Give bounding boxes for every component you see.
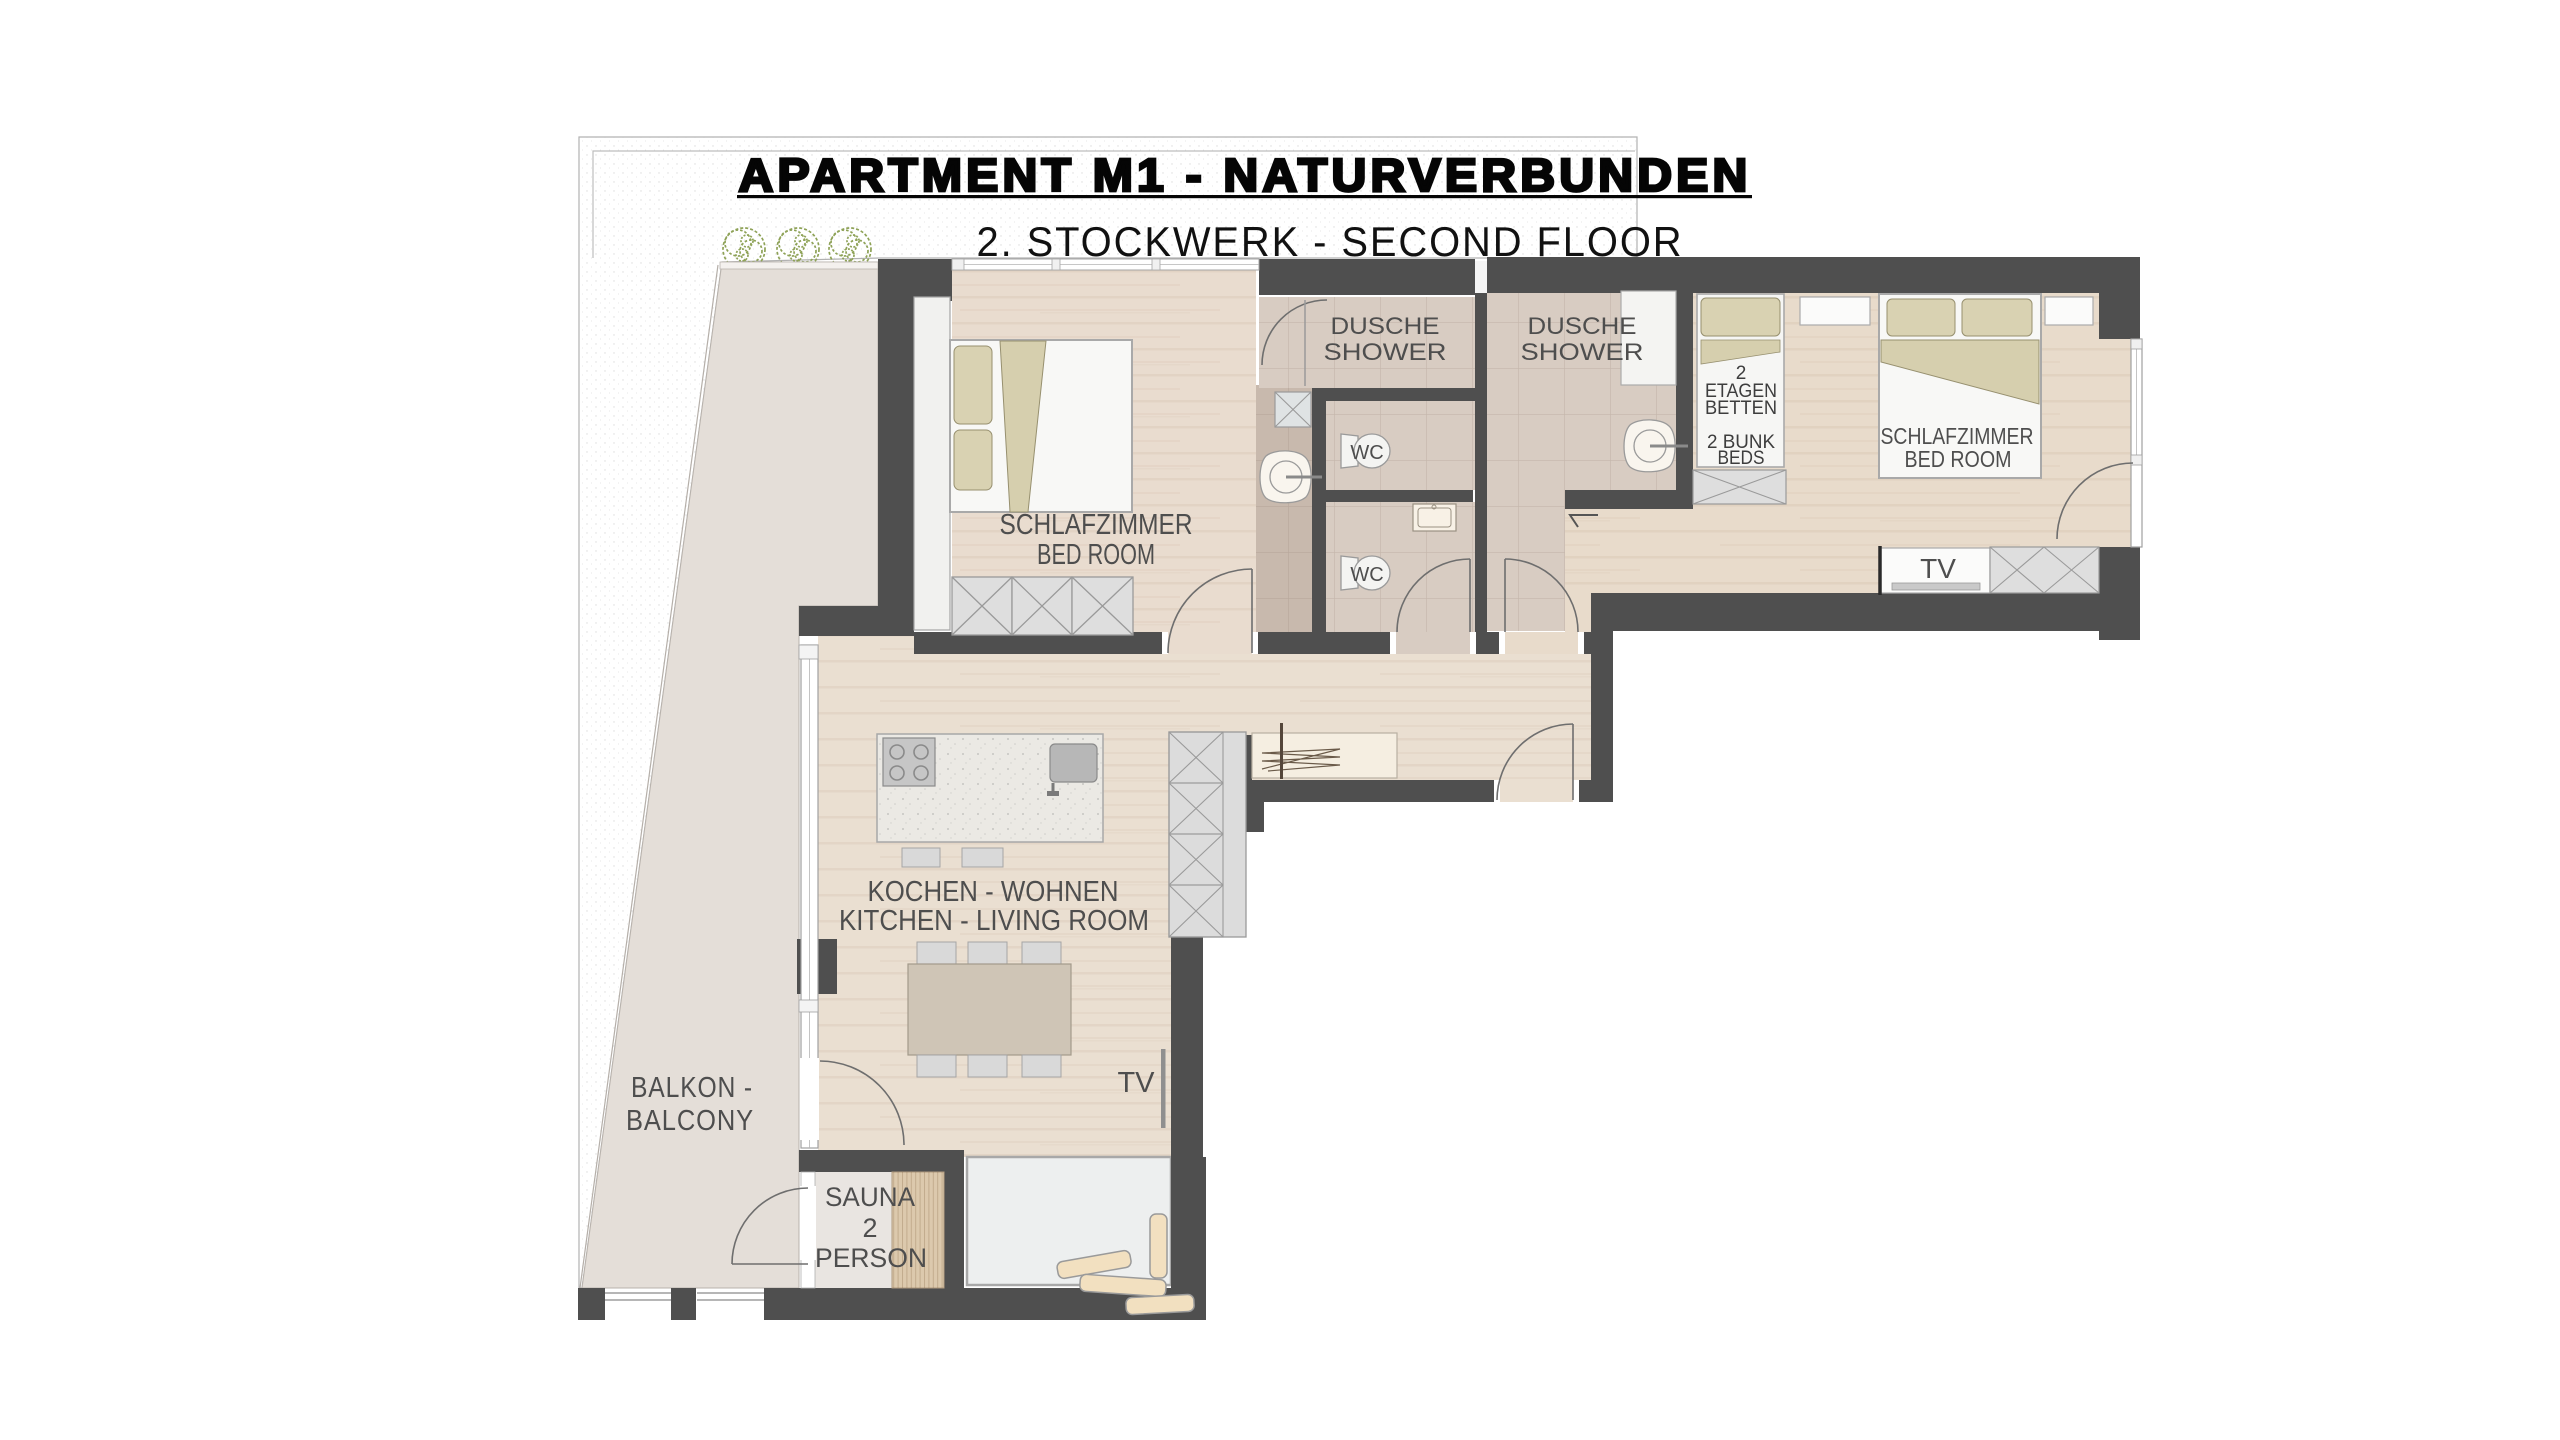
svg-text:BALKON -: BALKON - [631, 1072, 753, 1104]
svg-text:TV: TV [1117, 1067, 1155, 1099]
svg-text:DUSCHE: DUSCHE [1331, 313, 1440, 340]
svg-text:2: 2 [862, 1213, 877, 1243]
svg-text:SCHLAFZIMMER: SCHLAFZIMMER [1000, 509, 1193, 541]
svg-text:SHOWER: SHOWER [1324, 339, 1447, 366]
svg-text:TV: TV [1920, 553, 1956, 584]
svg-text:KITCHEN - LIVING ROOM: KITCHEN - LIVING ROOM [839, 905, 1149, 937]
svg-text:BED ROOM: BED ROOM [1905, 446, 2012, 472]
svg-text:BALCONY: BALCONY [626, 1105, 754, 1137]
svg-text:WC: WC [1350, 564, 1383, 586]
svg-text:PERSON: PERSON [815, 1243, 927, 1273]
svg-text:WC: WC [1350, 442, 1383, 464]
svg-text:SAUNA: SAUNA [825, 1182, 915, 1212]
svg-text:BEDS: BEDS [1718, 448, 1765, 469]
svg-text:BETTEN: BETTEN [1705, 398, 1777, 419]
svg-text:BED ROOM: BED ROOM [1037, 539, 1155, 571]
svg-text:APARTMENT M1 - NATURVERBUNDEN: APARTMENT M1 - NATURVERBUNDEN [739, 149, 1752, 201]
svg-text:KOCHEN - WOHNEN: KOCHEN - WOHNEN [868, 876, 1119, 908]
svg-text:SHOWER: SHOWER [1521, 339, 1644, 366]
svg-text:DUSCHE: DUSCHE [1528, 313, 1637, 340]
